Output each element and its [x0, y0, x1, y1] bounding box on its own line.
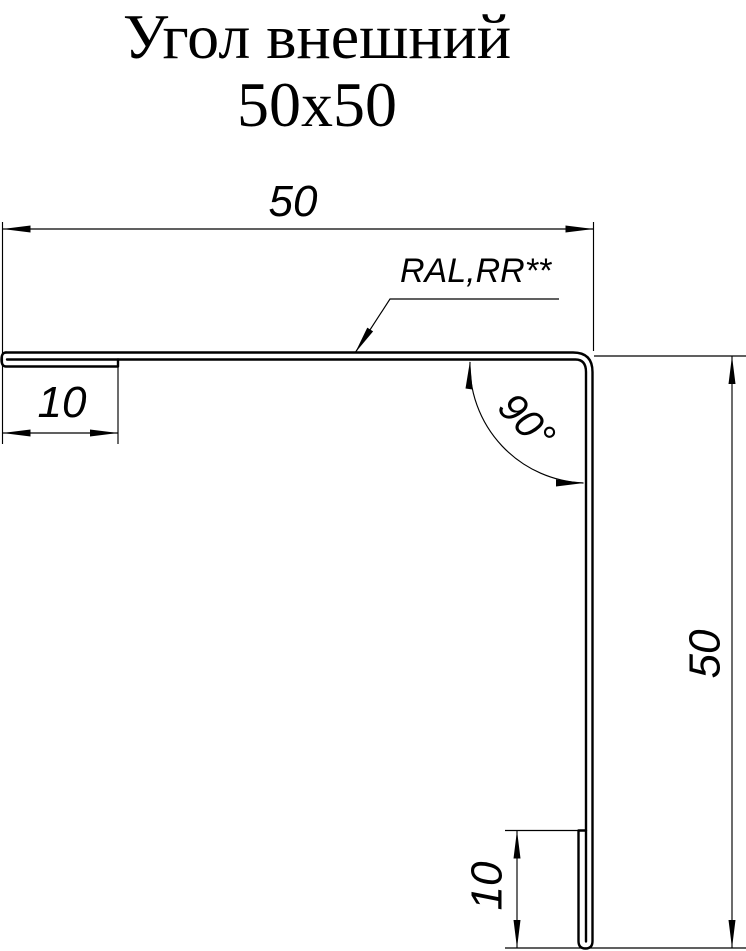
arrowhead-right-icon — [566, 226, 594, 233]
dimension-left-fold: 10 — [3, 367, 119, 445]
dimension-value-corner-angle: 90° — [489, 385, 563, 459]
title-block: Угол внешний 50x50 — [123, 1, 511, 140]
arrowhead-top-icon — [514, 831, 521, 859]
angle-arrowhead-right-icon — [556, 480, 584, 487]
page-title-line1: Угол внешний — [123, 1, 511, 72]
arrowhead-bottom-icon — [514, 920, 521, 948]
coating-leader-note: RAL,RR** — [355, 252, 559, 353]
angle-arrowhead-top-icon — [466, 361, 473, 390]
arrowhead-left-icon — [3, 430, 31, 437]
dimension-corner-angle: 90° — [466, 361, 585, 487]
arrowhead-top-icon — [729, 356, 736, 384]
leader-arrowhead-icon — [355, 328, 373, 353]
dimension-value-top-width: 50 — [269, 177, 318, 226]
dimension-value-left-fold: 10 — [38, 378, 87, 427]
profile-outer-surface — [6, 353, 593, 949]
drawing-sheet: Угол внешний 50x50 50 10 — [0, 0, 746, 951]
profile-inner-surface — [7, 360, 586, 942]
dimension-value-right-height: 50 — [680, 629, 729, 678]
dimension-value-bottom-fold: 10 — [462, 861, 511, 910]
dimension-bottom-fold: 10 — [462, 831, 578, 949]
coating-note-label: RAL,RR** — [400, 252, 553, 290]
profile-geometry — [2, 353, 593, 949]
corner-profile-drawing: Угол внешний 50x50 50 10 — [0, 0, 746, 951]
arrowhead-bottom-icon — [729, 920, 736, 948]
arrowhead-right-icon — [90, 430, 118, 437]
leader-line — [355, 299, 559, 353]
page-title-line2: 50x50 — [237, 69, 397, 140]
arrowhead-left-icon — [3, 226, 31, 233]
